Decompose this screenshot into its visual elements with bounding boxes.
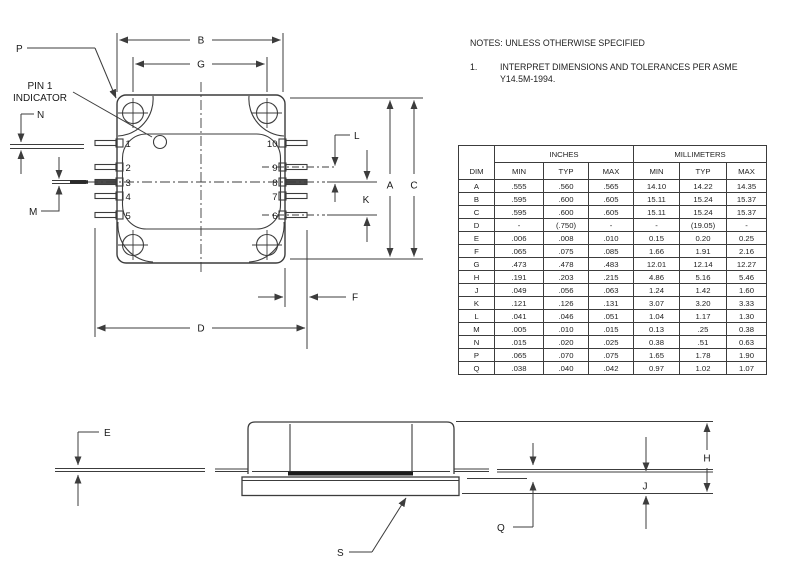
subheader-mm-typ: TYP [680,163,727,180]
in-typ-cell: .046 [544,310,589,323]
svg-text:8: 8 [272,178,277,189]
svg-text:7: 7 [272,192,277,203]
mm-max-cell: 0.63 [727,336,767,349]
in-typ-cell: .010 [544,323,589,336]
drawing-sheet: P PIN 1 INDICATOR N M B G A C L K F D 1 … [0,0,806,564]
mounting-hole-top-right [252,98,282,128]
in-typ-cell: .478 [544,258,589,271]
in-typ-cell: .008 [544,232,589,245]
subheader-mm-min: MIN [634,163,680,180]
package-side-view-drawing: E H J Q S [30,398,770,564]
mm-typ-cell: 1.17 [680,310,727,323]
label-B: B [198,36,205,47]
in-max-cell: .085 [589,245,634,258]
dim-cell: J [459,284,495,297]
subheader-mm-max: MAX [727,163,767,180]
dimension-A-C [290,98,423,259]
table-row: C .595 .600 .605 15.11 15.24 15.37 [459,206,767,219]
mm-min-cell: 4.86 [634,271,680,284]
col-header-dim: DIM [459,146,495,180]
note-text: INTERPRET DIMENSIONS AND TOLERANCES PER … [500,62,738,85]
in-max-cell: .010 [589,232,634,245]
in-min-cell: .473 [495,258,544,271]
mm-max-cell: 0.38 [727,323,767,336]
pin1-leader [73,92,152,137]
mm-min-cell: - [634,219,680,232]
dim-cell: C [459,206,495,219]
mm-max-cell: 1.07 [727,362,767,375]
label-L: L [354,131,360,142]
label-M: M [29,207,37,218]
mm-typ-cell: 0.20 [680,232,727,245]
notes-title: NOTES: UNLESS OTHERWISE SPECIFIED [470,38,800,49]
mm-typ-cell: 1.91 [680,245,727,258]
in-min-cell: .595 [495,206,544,219]
mm-min-cell: 0.13 [634,323,680,336]
in-min-cell: .121 [495,297,544,310]
mm-max-cell: - [727,219,767,232]
mm-max-cell: 5.46 [727,271,767,284]
label-P: P [16,44,23,55]
svg-text:6: 6 [272,211,277,222]
dimension-table: DIM INCHES MILLIMETERS MIN TYP MAX MIN T… [458,145,767,375]
table-row: K .121 .126 .131 3.07 3.20 3.33 [459,297,767,310]
package-lid-outline [123,134,281,229]
group-header-millimeters: MILLIMETERS [634,146,767,163]
svg-text:1: 1 [126,139,131,150]
dim-cell: N [459,336,495,349]
subheader-in-max: MAX [589,163,634,180]
label-A: A [387,181,394,192]
in-max-cell: .025 [589,336,634,349]
mm-typ-cell: 1.02 [680,362,727,375]
mm-min-cell: 0.38 [634,336,680,349]
pin-numbers: 1 2 3 4 5 10 9 8 7 6 [126,139,278,222]
mm-typ-cell: (19.05) [680,219,727,232]
mm-min-cell: 1.24 [634,284,680,297]
in-max-cell: .483 [589,258,634,271]
mm-typ-cell: 14.22 [680,180,727,193]
in-max-cell: .075 [589,349,634,362]
dim-cell: G [459,258,495,271]
in-min-cell: .555 [495,180,544,193]
dim-cell: P [459,349,495,362]
in-max-cell: .015 [589,323,634,336]
lid-side-profile [248,422,454,474]
mm-typ-cell: 12.14 [680,258,727,271]
mm-typ-cell: 1.42 [680,284,727,297]
label-N: N [37,110,44,121]
reference-lines-right [456,422,713,494]
dimension-Q [513,443,533,527]
label-H: H [703,454,710,465]
label-G: G [197,60,205,71]
in-min-cell: .015 [495,336,544,349]
label-K: K [363,195,370,206]
dim-cell: D [459,219,495,232]
in-max-cell: .605 [589,206,634,219]
in-max-cell: - [589,219,634,232]
mm-min-cell: 0.97 [634,362,680,375]
label-pin1-line1: PIN 1 [27,81,52,92]
in-min-cell: .595 [495,193,544,206]
in-typ-cell: .070 [544,349,589,362]
label-E: E [104,428,111,439]
in-typ-cell: .600 [544,193,589,206]
lead-exit-right [454,469,489,472]
label-F: F [352,293,358,304]
in-max-cell: .042 [589,362,634,375]
dim-cell: B [459,193,495,206]
mm-typ-cell: 1.78 [680,349,727,362]
centerlines [88,82,377,272]
mm-min-cell: 1.66 [634,245,680,258]
pin1-indicator-circle [154,136,167,149]
mm-min-cell: 3.07 [634,297,680,310]
in-min-cell: .065 [495,245,544,258]
table-row: A .555 .560 .565 14.10 14.22 14.35 [459,180,767,193]
mm-max-cell: 15.37 [727,193,767,206]
table-row: Q .038 .040 .042 0.97 1.02 1.07 [459,362,767,375]
mm-min-cell: 1.04 [634,310,680,323]
mm-max-cell: 12.27 [727,258,767,271]
svg-text:5: 5 [126,211,131,222]
in-typ-cell: .040 [544,362,589,375]
table-row: P .065 .070 .075 1.65 1.78 1.90 [459,349,767,362]
label-J: J [643,482,648,493]
mm-min-cell: 0.15 [634,232,680,245]
dim-cell: E [459,232,495,245]
group-header-inches: INCHES [495,146,634,163]
in-typ-cell: .203 [544,271,589,284]
table-row: N .015 .020 .025 0.38 .51 0.63 [459,336,767,349]
mm-min-cell: 14.10 [634,180,680,193]
dim-cell: K [459,297,495,310]
dimension-F [258,230,346,349]
mm-min-cell: 1.65 [634,349,680,362]
base-flange [242,477,459,496]
label-S: S [337,548,344,559]
notes-block: NOTES: UNLESS OTHERWISE SPECIFIED 1. INT… [470,38,800,85]
lead-profile-left [55,469,248,472]
in-typ-cell: .020 [544,336,589,349]
dim-cell: A [459,180,495,193]
subheader-in-typ: TYP [544,163,589,180]
svg-text:2: 2 [126,163,131,174]
in-min-cell: .191 [495,271,544,284]
mm-typ-cell: 15.24 [680,193,727,206]
in-min-cell: .041 [495,310,544,323]
mm-max-cell: 1.30 [727,310,767,323]
mm-max-cell: 0.25 [727,232,767,245]
in-max-cell: .051 [589,310,634,323]
table-row: D - (.750) - - (19.05) - [459,219,767,232]
table-row: J .049 .056 .063 1.24 1.42 1.60 [459,284,767,297]
dim-cell: Q [459,362,495,375]
in-min-cell: .005 [495,323,544,336]
mm-typ-cell: .51 [680,336,727,349]
dim-cell: H [459,271,495,284]
svg-text:4: 4 [126,192,131,203]
mm-max-cell: 1.60 [727,284,767,297]
in-min-cell: .049 [495,284,544,297]
subheader-in-min: MIN [495,163,544,180]
in-max-cell: .215 [589,271,634,284]
in-typ-cell: .560 [544,180,589,193]
in-min-cell: .038 [495,362,544,375]
in-min-cell: .065 [495,349,544,362]
note-item: 1. INTERPRET DIMENSIONS AND TOLERANCES P… [470,62,800,85]
in-max-cell: .131 [589,297,634,310]
mounting-hole-bottom-left [118,230,148,260]
svg-text:10: 10 [267,139,278,150]
mm-min-cell: 12.01 [634,258,680,271]
label-D: D [197,324,204,335]
label-pin1-line2: INDICATOR [13,93,67,104]
table-row: G .473 .478 .483 12.01 12.14 12.27 [459,258,767,271]
dim-cell: L [459,310,495,323]
in-typ-cell: .126 [544,297,589,310]
mm-typ-cell: .25 [680,323,727,336]
in-min-cell: - [495,219,544,232]
label-Q: Q [497,523,505,534]
mm-typ-cell: 5.16 [680,271,727,284]
dim-cell: M [459,323,495,336]
dimension-M [41,157,88,211]
table-row: H .191 .203 .215 4.86 5.16 5.46 [459,271,767,284]
in-typ-cell: .600 [544,206,589,219]
in-typ-cell: .075 [544,245,589,258]
mm-typ-cell: 3.20 [680,297,727,310]
package-top-view-drawing: P PIN 1 INDICATOR N M B G A C L K F D 1 … [0,20,435,370]
dim-cell: F [459,245,495,258]
mm-typ-cell: 15.24 [680,206,727,219]
mm-max-cell: 1.90 [727,349,767,362]
table-row: F .065 .075 .085 1.66 1.91 2.16 [459,245,767,258]
in-typ-cell: .056 [544,284,589,297]
dimension-D [95,228,305,337]
mm-min-cell: 15.11 [634,206,680,219]
svg-text:3: 3 [126,178,131,189]
table-row: M .005 .010 .015 0.13 .25 0.38 [459,323,767,336]
mm-max-cell: 15.37 [727,206,767,219]
mm-min-cell: 15.11 [634,193,680,206]
in-max-cell: .565 [589,180,634,193]
mm-max-cell: 3.33 [727,297,767,310]
in-max-cell: .605 [589,193,634,206]
svg-text:9: 9 [272,163,277,174]
in-max-cell: .063 [589,284,634,297]
mm-max-cell: 14.35 [727,180,767,193]
s-leader [349,498,406,552]
table-row: B .595 .600 .605 15.11 15.24 15.37 [459,193,767,206]
note-number: 1. [470,62,500,85]
mounting-hole-bottom-right [252,230,282,260]
table-row: E .006 .008 .010 0.15 0.20 0.25 [459,232,767,245]
in-typ-cell: (.750) [544,219,589,232]
mm-max-cell: 2.16 [727,245,767,258]
dimension-L [335,135,350,202]
in-min-cell: .006 [495,232,544,245]
label-C: C [410,181,417,192]
table-row: L .041 .046 .051 1.04 1.17 1.30 [459,310,767,323]
dimension-N [10,114,84,174]
